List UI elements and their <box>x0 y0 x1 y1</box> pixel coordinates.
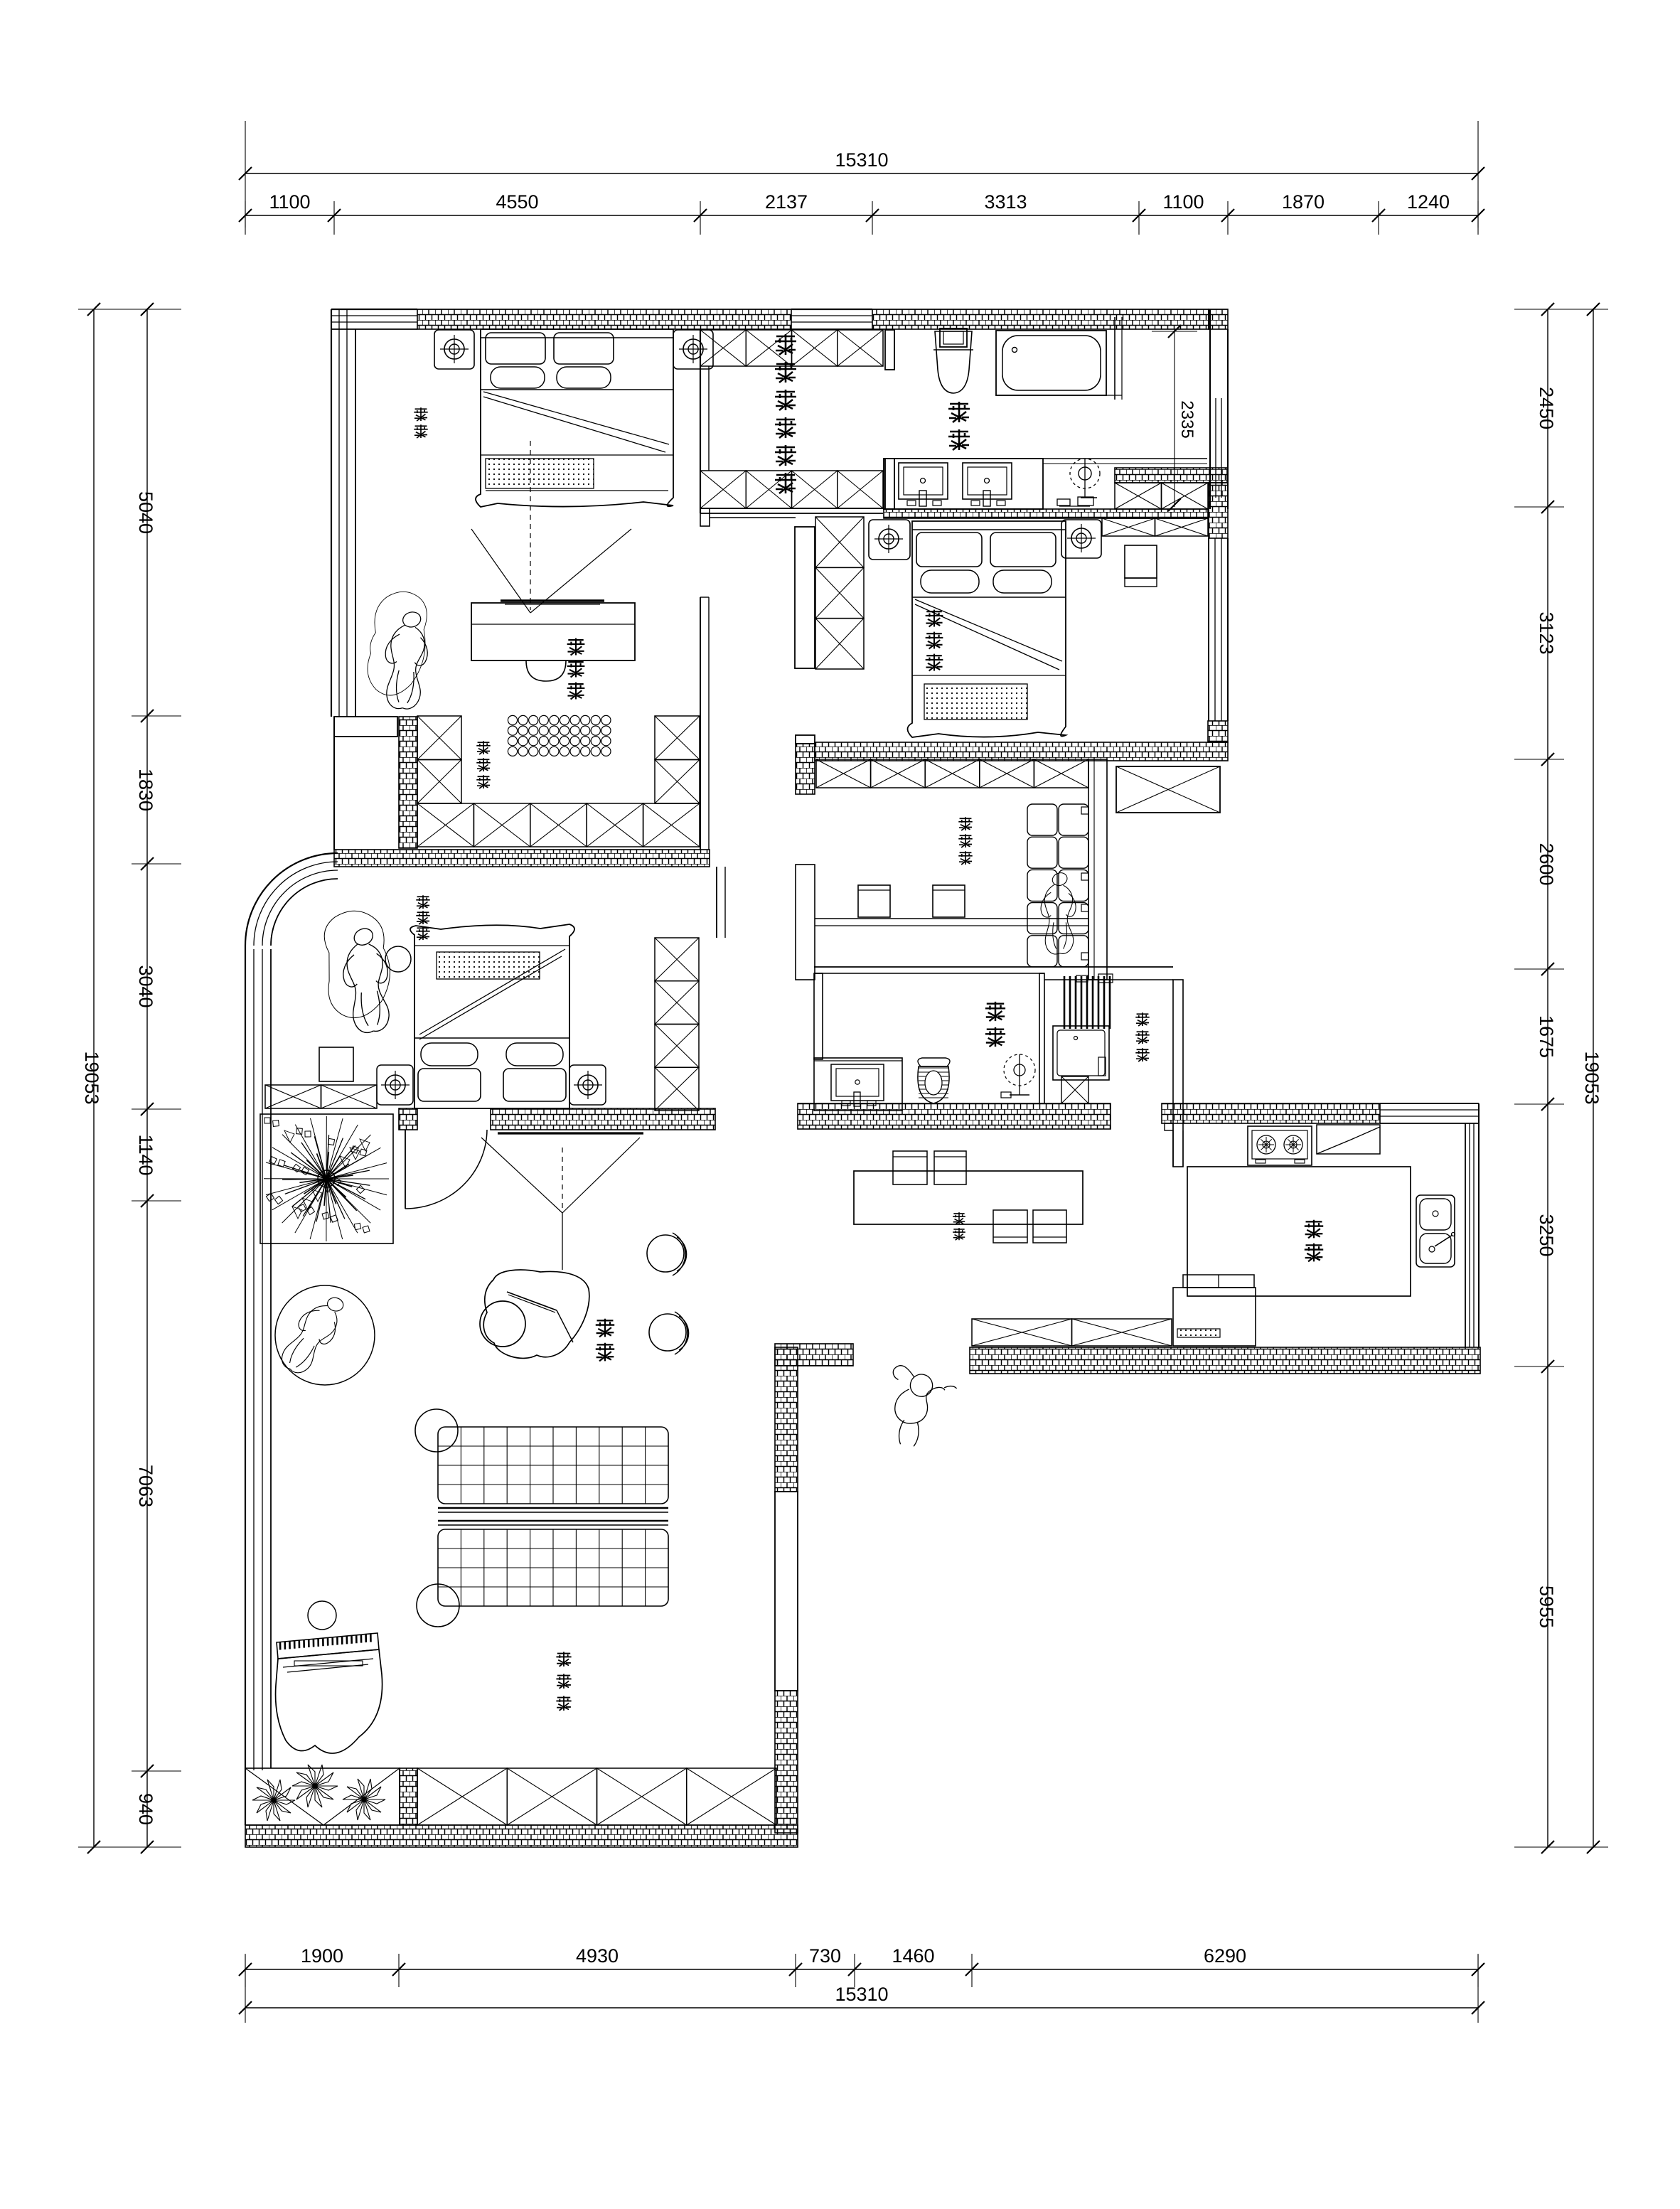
svg-text:5040: 5040 <box>135 491 156 534</box>
svg-text:19053: 19053 <box>81 1051 102 1104</box>
svg-text:1830: 1830 <box>135 769 156 811</box>
svg-text:6290: 6290 <box>1204 1945 1246 1967</box>
svg-text:3250: 3250 <box>1536 1214 1557 1256</box>
svg-text:940: 940 <box>135 1793 156 1825</box>
svg-text:2450: 2450 <box>1536 387 1557 429</box>
svg-text:1240: 1240 <box>1407 191 1450 213</box>
svg-text:7063: 7063 <box>135 1465 156 1507</box>
svg-text:19053: 19053 <box>1581 1051 1603 1104</box>
svg-text:3313: 3313 <box>984 191 1027 213</box>
svg-text:1675: 1675 <box>1536 1015 1557 1058</box>
svg-text:1460: 1460 <box>892 1945 934 1967</box>
svg-text:1900: 1900 <box>301 1945 343 1967</box>
svg-text:15310: 15310 <box>835 149 888 171</box>
svg-text:730: 730 <box>809 1945 841 1967</box>
svg-text:15310: 15310 <box>835 1984 888 2005</box>
svg-text:2335: 2335 <box>1177 400 1197 438</box>
svg-text:2600: 2600 <box>1536 843 1557 885</box>
svg-text:3040: 3040 <box>135 965 156 1007</box>
svg-text:1140: 1140 <box>135 1134 156 1175</box>
svg-text:5955: 5955 <box>1536 1585 1557 1628</box>
svg-text:2137: 2137 <box>765 191 808 213</box>
svg-text:4550: 4550 <box>496 191 538 213</box>
svg-text:1870: 1870 <box>1282 191 1325 213</box>
svg-text:3123: 3123 <box>1536 611 1557 654</box>
svg-text:1100: 1100 <box>1162 191 1204 213</box>
svg-text:1100: 1100 <box>269 191 310 213</box>
svg-text:4930: 4930 <box>576 1945 619 1967</box>
